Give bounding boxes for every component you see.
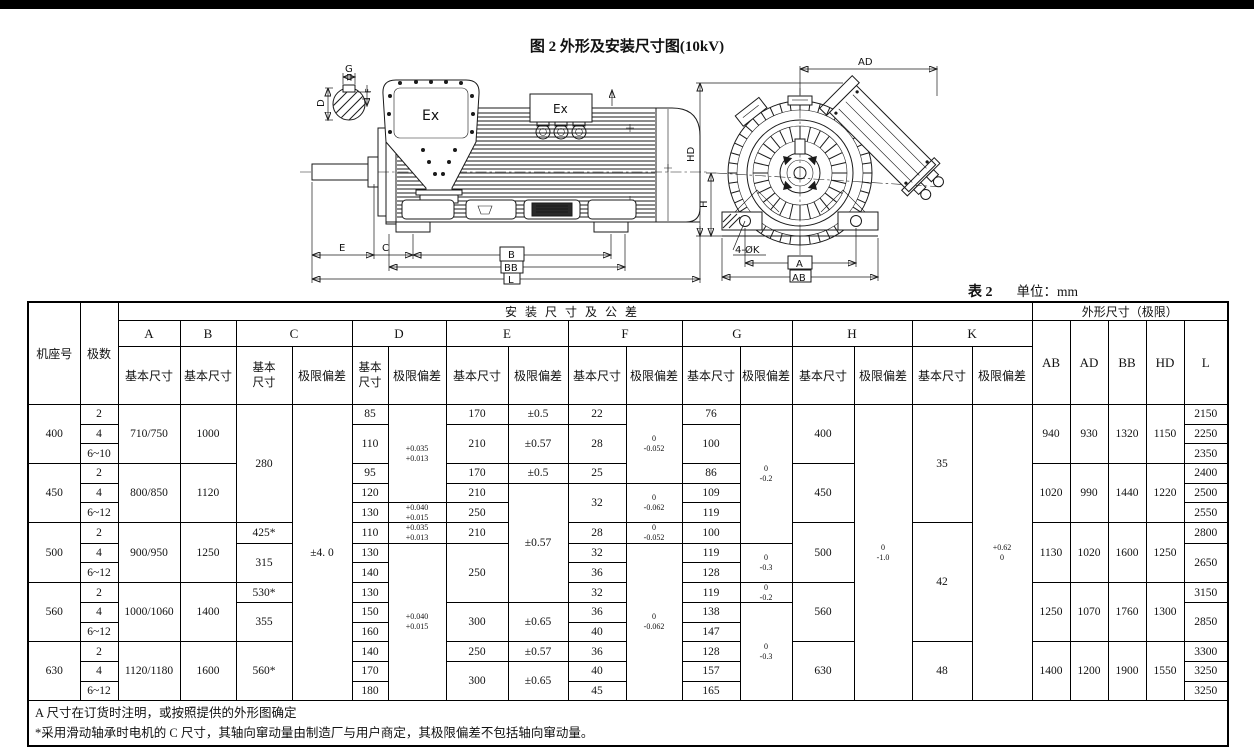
header-cell: 极限偏差: [626, 347, 682, 405]
table-cell: +0.035 +0.013: [388, 523, 446, 543]
table-cell: 32: [568, 582, 626, 602]
table-cell: 2150: [1184, 405, 1228, 425]
table-cell: 119: [682, 503, 740, 523]
header-install-group: 安装尺寸及公差: [118, 302, 1032, 321]
header-cell: 基本尺寸: [446, 347, 508, 405]
table-cell: 22: [568, 405, 626, 425]
table-cell: 6~12: [80, 563, 118, 583]
table-cell: 140: [352, 563, 388, 583]
header-cell: 基本 尺寸: [352, 347, 388, 405]
table-cell: 300: [446, 662, 508, 701]
dim-label-h: H: [699, 200, 710, 208]
table-cell: 140: [352, 642, 388, 662]
table-cell: 560: [792, 582, 854, 642]
table-cell: 150: [352, 603, 388, 623]
header-row: ABCDEFGHKABADBBHDL: [28, 321, 1228, 347]
table-cell: ±0.57: [508, 483, 568, 603]
table-cell: 25: [568, 463, 626, 483]
table-cell: 450: [28, 463, 80, 523]
table-cell: 1400: [180, 582, 236, 642]
table-cell: 1440: [1108, 463, 1146, 523]
table-cell: 110: [352, 523, 388, 543]
table-cell: 1120/1180: [118, 642, 180, 701]
table-cell: 400: [792, 405, 854, 464]
table-cell: 35: [912, 405, 972, 523]
table-cell: 100: [682, 424, 740, 463]
table-cell: 110: [352, 424, 388, 463]
table-cell: 42: [912, 523, 972, 642]
table-cell: 210: [446, 483, 508, 503]
table-cell: 1250: [1146, 523, 1184, 583]
table-cell: 36: [568, 603, 626, 623]
header-cell: 极限偏差: [972, 347, 1032, 405]
table-cell: 1250: [180, 523, 236, 583]
table-cell: 560: [28, 582, 80, 642]
table-cell: 0 -1.0: [854, 405, 912, 701]
table-cell: 0 -0.052: [626, 405, 682, 484]
header-cell: 基本尺寸: [118, 347, 180, 405]
table-cell: 2250: [1184, 424, 1228, 444]
header-cell: 极限偏差: [508, 347, 568, 405]
table-cell: 300: [446, 603, 508, 642]
table-cell: 119: [682, 582, 740, 602]
table-cell: 1130: [1032, 523, 1070, 583]
header-cell: 基本尺寸: [682, 347, 740, 405]
table-cell: 100: [682, 523, 740, 543]
table-cell: 6~12: [80, 681, 118, 701]
header-cell: F: [568, 321, 682, 347]
table-cell: 900/950: [118, 523, 180, 583]
table-cell: 40: [568, 622, 626, 642]
table-cell: 450: [792, 463, 854, 523]
table-cell: 1000: [180, 405, 236, 464]
header-cell: 基本尺寸: [180, 347, 236, 405]
table-cell: 315: [236, 543, 292, 582]
table-cell: ±0.5: [508, 463, 568, 483]
table-row: 4002710/7501000280±4. 085+0.035 +0.01317…: [28, 405, 1228, 425]
table-meta: 表 2单位：mm: [968, 280, 1078, 301]
table-cell: 130: [352, 582, 388, 602]
table-cell: 2350: [1184, 444, 1228, 464]
header-cell: G: [682, 321, 792, 347]
table-cell: 530*: [236, 582, 292, 602]
header-cell: 极限偏差: [854, 347, 912, 405]
dim-label-b: B: [508, 250, 515, 261]
table-cell: 1020: [1070, 523, 1108, 583]
table-cell: 2850: [1184, 603, 1228, 642]
dimension-drawing: G D F: [0, 52, 1254, 292]
header-frame: 机座号: [28, 302, 80, 405]
table-cell: 630: [792, 642, 854, 701]
table-cell: 250: [446, 543, 508, 603]
table-cell: 76: [682, 405, 740, 425]
dim-label-hd: HD: [686, 146, 697, 162]
table-cell: 710/750: [118, 405, 180, 464]
table-cell: 3250: [1184, 681, 1228, 701]
header-cell: C: [236, 321, 352, 347]
header-cell: A: [118, 321, 180, 347]
dim-label-ad: AD: [858, 57, 873, 68]
table-cell: 4: [80, 603, 118, 623]
ex-marking-aux: Ex: [553, 102, 568, 116]
table-cell: 28: [568, 424, 626, 463]
table-cell: 800/850: [118, 463, 180, 523]
table-cell: 990: [1070, 463, 1108, 523]
table-cell: 36: [568, 642, 626, 662]
table-cell: 1600: [180, 642, 236, 701]
table-cell: 128: [682, 563, 740, 583]
header-cell: 基本尺寸: [792, 347, 854, 405]
table-cell: 500: [792, 523, 854, 583]
table-cell: 930: [1070, 405, 1108, 464]
header-cell: D: [352, 321, 446, 347]
table-cell: 3250: [1184, 662, 1228, 682]
table-cell: 48: [912, 642, 972, 701]
table-cell: 3150: [1184, 582, 1228, 602]
table-cell: 1020: [1032, 463, 1070, 523]
table-cell: 1000/1060: [118, 582, 180, 642]
table-cell: 0 -0.2: [740, 582, 792, 602]
dim-label-bb: BB: [504, 263, 518, 274]
table-cell: 120: [352, 483, 388, 503]
header-outline-group: 外形尺寸（极限）: [1032, 302, 1228, 321]
table-cell: 2: [80, 463, 118, 483]
table-cell: 85: [352, 405, 388, 425]
dim-label-k-holes: 4-ØK: [735, 244, 760, 256]
header-poles: 极数: [80, 302, 118, 405]
table-cell: 138: [682, 603, 740, 623]
table-cell: 32: [568, 483, 626, 523]
dim-label-ab: AB: [792, 273, 806, 284]
header-cell: K: [912, 321, 1032, 347]
table-cell: 157: [682, 662, 740, 682]
dim-label-d: D: [316, 99, 327, 107]
table-cell: 170: [352, 662, 388, 682]
header-cell: AD: [1070, 321, 1108, 405]
table-cell: 1250: [1032, 582, 1070, 642]
table-cell: 0 -0.052: [626, 523, 682, 543]
dim-label-l: L: [508, 275, 514, 286]
table-cell: 500: [28, 523, 80, 583]
table-cell: 355: [236, 603, 292, 642]
table-cell: 2: [80, 523, 118, 543]
header-cell: 极限偏差: [740, 347, 792, 405]
table-cell: 2: [80, 582, 118, 602]
dim-label-a: A: [796, 259, 803, 270]
table-cell: 2800: [1184, 523, 1228, 543]
table-cell: 0 -0.062: [626, 483, 682, 523]
document-page: 图 2 外形及安装尺寸图(10kV) G: [0, 0, 1254, 750]
header-cell: 基本 尺寸: [236, 347, 292, 405]
table-cell: 2400: [1184, 463, 1228, 483]
table-cell: 4: [80, 543, 118, 563]
dim-label-g: G: [345, 64, 353, 75]
table-cell: 170: [446, 463, 508, 483]
table-body: 4002710/7501000280±4. 085+0.035 +0.01317…: [28, 405, 1228, 747]
header-cell: B: [180, 321, 236, 347]
table-cell: 32: [568, 543, 626, 563]
table-row: 5002900/9501250425*110+0.035 +0.01321028…: [28, 523, 1228, 543]
table-cell: 2550: [1184, 503, 1228, 523]
table-cell: 1900: [1108, 642, 1146, 701]
table-head: 机座号极数安装尺寸及公差外形尺寸（极限）ABCDEFGHKABADBBHDL基本…: [28, 302, 1228, 405]
table-cell: 45: [568, 681, 626, 701]
table-cell: 180: [352, 681, 388, 701]
table-cell: ±4. 0: [292, 405, 352, 701]
header-cell: 基本尺寸: [912, 347, 972, 405]
table-cell: 147: [682, 622, 740, 642]
table-cell: 940: [1032, 405, 1070, 464]
table-cell: +0.62 0: [972, 405, 1032, 701]
header-cell: 极限偏差: [292, 347, 352, 405]
dim-label-c: C: [382, 243, 389, 254]
table-cell: 210: [446, 523, 508, 543]
table-cell: 560*: [236, 642, 292, 701]
table-cell: 86: [682, 463, 740, 483]
table-cell: 1320: [1108, 405, 1146, 464]
table-cell: 1220: [1146, 463, 1184, 523]
table-cell: 250: [446, 503, 508, 523]
table-cell: 2: [80, 405, 118, 425]
table-cell: 630: [28, 642, 80, 701]
table-cell: 0 -0.062: [626, 543, 682, 701]
table-cell: 4: [80, 424, 118, 444]
header-cell: 基本尺寸: [568, 347, 626, 405]
table-cell: ±0.65: [508, 603, 568, 642]
header-cell: E: [446, 321, 568, 347]
table-cell: 1200: [1070, 642, 1108, 701]
header-cell: HD: [1146, 321, 1184, 405]
table-cell: 210: [446, 424, 508, 463]
table-cell: 6~12: [80, 503, 118, 523]
header-cell: L: [1184, 321, 1228, 405]
table-cell: 40: [568, 662, 626, 682]
unit-label: 单位：mm: [1017, 284, 1079, 299]
table-cell: 165: [682, 681, 740, 701]
shaft-section-detail: G D F: [316, 64, 375, 126]
table-cell: 128: [682, 642, 740, 662]
motor-end-view: 4-ØK A AB HD H AD: [686, 57, 952, 284]
table-cell: 250: [446, 642, 508, 662]
dimension-table: 机座号极数安装尺寸及公差外形尺寸（极限）ABCDEFGHKABADBBHDL基本…: [27, 301, 1229, 747]
table-cell: 1600: [1108, 523, 1146, 583]
table-cell: 2500: [1184, 483, 1228, 503]
table-cell: 0 -0.3: [740, 603, 792, 701]
table-cell: +0.035 +0.013: [388, 405, 446, 503]
table-cell: 95: [352, 463, 388, 483]
table-cell: 1550: [1146, 642, 1184, 701]
ex-marking-main: Ex: [422, 108, 439, 124]
table-cell: ±0.65: [508, 662, 568, 701]
table-cell: ±0.57: [508, 642, 568, 662]
header-row: 机座号极数安装尺寸及公差外形尺寸（极限）: [28, 302, 1228, 321]
table-cell: ±0.5: [508, 405, 568, 425]
header-cell: 极限偏差: [388, 347, 446, 405]
table-cell: 1070: [1070, 582, 1108, 642]
table-cell: 3300: [1184, 642, 1228, 662]
header-cell: AB: [1032, 321, 1070, 405]
table-cell: 1150: [1146, 405, 1184, 464]
table-cell: 2650: [1184, 543, 1228, 582]
page-top-rule: [0, 0, 1254, 9]
table-cell: 119: [682, 543, 740, 563]
table-cell: 28: [568, 523, 626, 543]
table-cell: 2: [80, 642, 118, 662]
table-cell: 36: [568, 563, 626, 583]
table-cell: 130: [352, 543, 388, 563]
header-cell: BB: [1108, 321, 1146, 405]
table-cell: 160: [352, 622, 388, 642]
table-number: 表 2: [968, 285, 993, 300]
table-cell: 1120: [180, 463, 236, 523]
table-cell: ±0.57: [508, 424, 568, 463]
table-cell: +0.040 +0.015: [388, 543, 446, 701]
table-cell: 1760: [1108, 582, 1146, 642]
motor-side-view: Ex Ex: [300, 80, 708, 286]
dim-label-f: F: [364, 88, 373, 93]
table-cell: 6~10: [80, 444, 118, 464]
table-cell: 109: [682, 483, 740, 503]
table-notes: A 尺寸在订货时注明，或按照提供的外形图确定 *采用滑动轴承时电机的 C 尺寸，…: [28, 701, 1228, 747]
table-cell: 280: [236, 405, 292, 523]
table-cell: 6~12: [80, 622, 118, 642]
notes-row: A 尺寸在订货时注明，或按照提供的外形图确定 *采用滑动轴承时电机的 C 尺寸，…: [28, 701, 1228, 747]
table-cell: 0 -0.2: [740, 405, 792, 544]
table-cell: 130: [352, 503, 388, 523]
table-cell: 170: [446, 405, 508, 425]
table-cell: 400: [28, 405, 80, 464]
table-cell: +0.040 +0.015: [388, 503, 446, 523]
table-cell: 425*: [236, 523, 292, 543]
dim-label-e: E: [339, 243, 345, 254]
table-cell: 1400: [1032, 642, 1070, 701]
table-cell: 1300: [1146, 582, 1184, 642]
table-cell: 4: [80, 483, 118, 503]
table-cell: 0 -0.3: [740, 543, 792, 582]
table-cell: 4: [80, 662, 118, 682]
header-cell: H: [792, 321, 912, 347]
